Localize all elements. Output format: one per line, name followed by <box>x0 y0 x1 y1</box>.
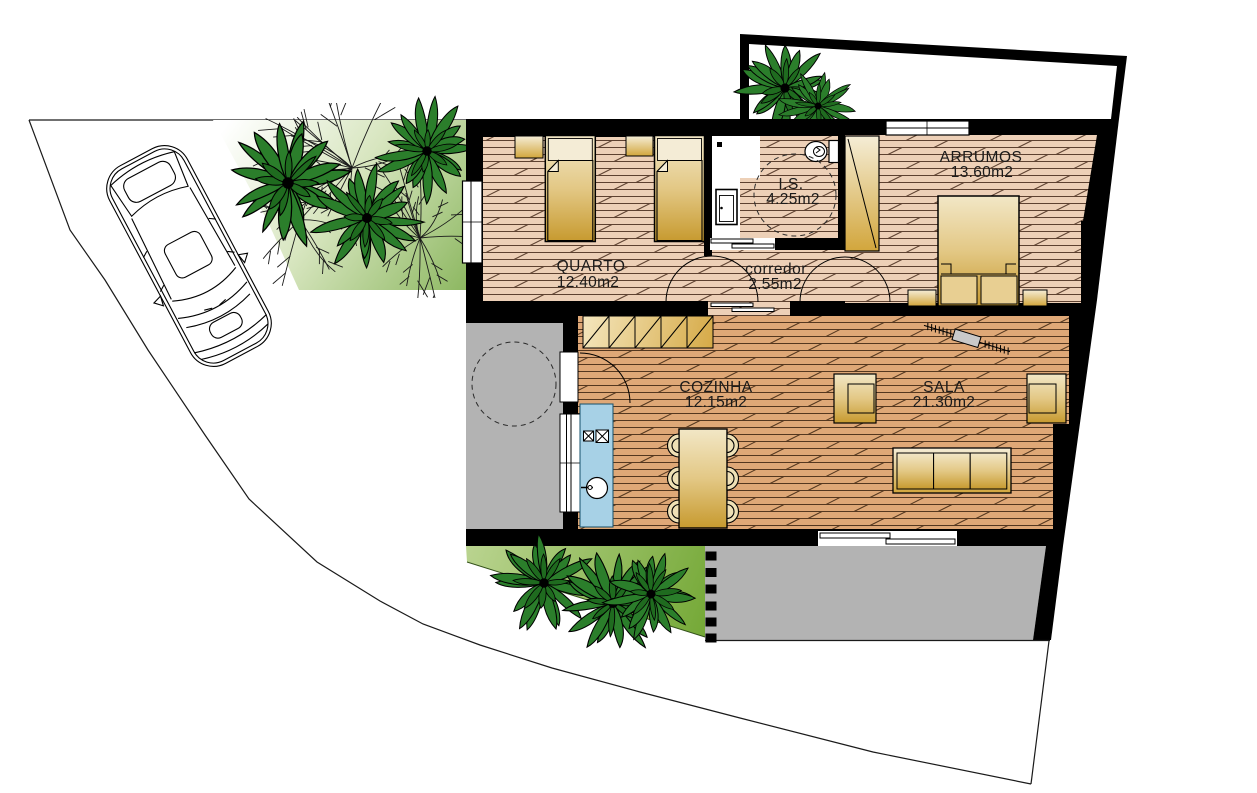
svg-text:12.40m2: 12.40m2 <box>557 274 619 291</box>
svg-text:21.30m2: 21.30m2 <box>913 394 975 411</box>
svg-text:4.25m2: 4.25m2 <box>766 191 820 208</box>
svg-text:2.55m2: 2.55m2 <box>748 276 802 293</box>
svg-text:QUARTO: QUARTO <box>557 258 626 275</box>
svg-text:12.15m2: 12.15m2 <box>685 394 747 411</box>
svg-text:13.60m2: 13.60m2 <box>951 164 1013 181</box>
